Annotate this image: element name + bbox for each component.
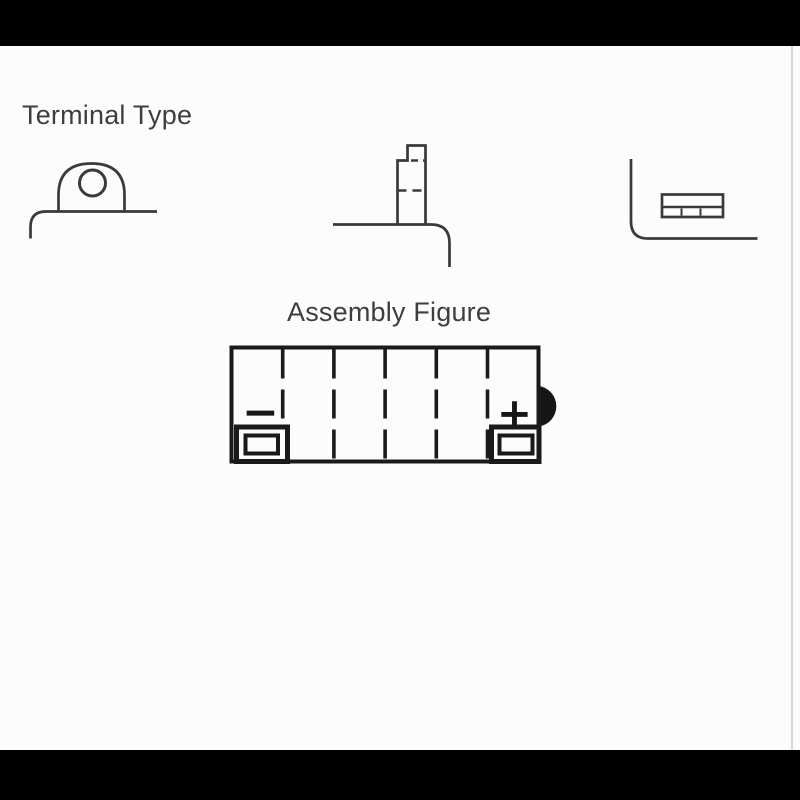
tab-terminal-base-line: [31, 212, 158, 239]
right-edge-divider-line: [791, 46, 793, 750]
tab-with-bolt-hole-terminal-icon: [31, 164, 158, 239]
battery-side-knob: [539, 386, 556, 427]
post-terminal-base-line: [333, 225, 450, 268]
battery-assembly-diagram: − +: [232, 348, 557, 462]
diagram-layer: − +: [0, 0, 800, 800]
threaded-post-terminal-icon: [333, 146, 450, 268]
post-terminal-outline: [398, 146, 426, 225]
blade-terminal-body: [662, 195, 723, 218]
bottom-letterbox-bar: [0, 750, 800, 800]
page: Terminal Type Assembly Figure: [0, 0, 800, 800]
blade-terminal-base-line: [631, 159, 758, 239]
battery-cell-dividers: [283, 350, 488, 462]
flat-blade-terminal-icon: [631, 159, 758, 239]
tab-terminal-bolt-hole: [80, 170, 106, 196]
